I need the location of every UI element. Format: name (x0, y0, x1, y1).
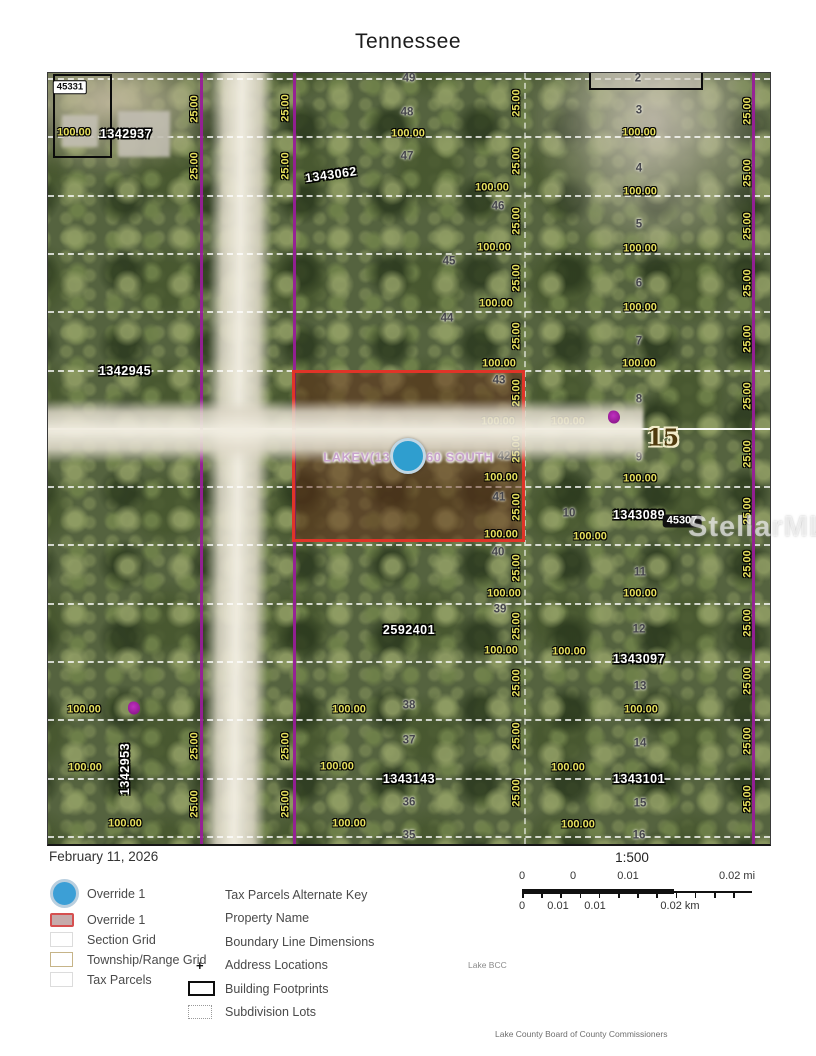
aerial-map: 4948474645444342414039383736352345678910… (47, 72, 771, 846)
map-label: 25.00 (281, 790, 292, 818)
map-label: 100.00 (551, 763, 585, 774)
legend-item: Tax Parcels Alternate Key (188, 886, 374, 903)
legend-item: Section Grid (50, 931, 207, 948)
map-label: 16 (633, 830, 646, 842)
map-label: 25.00 (512, 322, 523, 350)
map-label: 100.00 (67, 705, 101, 716)
page-title: Tennessee (0, 30, 816, 54)
map-label: 37 (403, 735, 416, 747)
legend-label: Override 1 (87, 913, 145, 927)
legend-item: Override 1 (50, 879, 207, 908)
building-footprint-lot-2 (589, 72, 703, 90)
scale-km-label: 0 (519, 900, 525, 912)
legend-swatch-rect-dotted (188, 1005, 212, 1019)
scale-mi-label: 0 (570, 870, 576, 882)
map-label: 25.00 (512, 779, 523, 807)
map-label: 25.00 (743, 609, 754, 637)
map-label: 100.00 (623, 474, 657, 485)
map-label: 25.00 (281, 94, 292, 122)
map-label: 1343097 (613, 653, 665, 666)
section-number: 15 (647, 427, 679, 450)
map-label: 100.00 (561, 820, 595, 831)
map-label: 1342945 (99, 365, 151, 378)
map-label: 100.00 (573, 532, 607, 543)
legend-label: Property Name (225, 911, 309, 925)
subdivision-lot-line (48, 719, 770, 721)
property-name-left: LAKEV(13 (323, 451, 390, 464)
legend-label: Override 1 (87, 887, 145, 901)
map-label: 25.00 (743, 325, 754, 353)
map-label: 100.00 (332, 705, 366, 716)
map-label: 100.00 (623, 187, 657, 198)
map-label: 1343089 (613, 509, 665, 522)
map-label: 43 (493, 375, 506, 387)
map-label: 2592401 (383, 624, 435, 637)
map-label: 25.00 (743, 159, 754, 187)
subdivision-lot-line (48, 544, 770, 546)
map-label: 100.00 (332, 819, 366, 830)
map-label: 47 (401, 151, 414, 163)
legend-item: Township/Range Grid (50, 951, 207, 968)
map-label: 100.00 (622, 128, 656, 139)
map-label: 25.00 (512, 264, 523, 292)
map-label: 48 (401, 107, 414, 119)
legend-swatch-rect-plain (50, 972, 73, 987)
scale-mi-label: 0.01 (617, 870, 638, 882)
purple-mark (128, 702, 140, 715)
map-label: 25.00 (512, 207, 523, 235)
map-label: 100.00 (623, 244, 657, 255)
map-label: 100.00 (623, 589, 657, 600)
map-label: 1342953 (119, 743, 132, 795)
scale-tick (714, 891, 716, 898)
map-label: 100.00 (477, 243, 511, 254)
purple-mark (608, 411, 620, 424)
map-label: 40 (492, 547, 505, 559)
legend-item: Override 1 (50, 911, 207, 928)
map-label: 100.00 (484, 530, 518, 541)
legend-label: Section Grid (87, 933, 156, 947)
scale-mi-label: 0.02 mi (719, 870, 755, 882)
map-label: 25.00 (190, 790, 201, 818)
legend-item: Tax Parcels (50, 971, 207, 988)
legend-label: Address Locations (225, 958, 328, 972)
scale-tick (656, 891, 658, 898)
subdivision-lot-line (48, 253, 770, 255)
map-label: 45 (443, 256, 456, 268)
map-label: 35 (403, 830, 416, 842)
attribution: Lake County Board of County Commissioner… (495, 1029, 667, 1039)
map-label: 25.00 (512, 147, 523, 175)
map-label: 7 (636, 336, 642, 348)
map-label: 100.00 (391, 129, 425, 140)
map-label: 100.00 (68, 763, 102, 774)
map-label: 100.00 (57, 128, 91, 139)
scale-km-label: 0.02 km (660, 900, 699, 912)
scale-km-label: 0.01 (547, 900, 568, 912)
legend-item: Boundary Line Dimensions (188, 933, 374, 950)
legend-label: Tax Parcels Alternate Key (225, 888, 367, 902)
scale-tick (560, 891, 562, 898)
legend-item: Building Footprints (188, 980, 374, 997)
map-label: 25.00 (512, 493, 523, 521)
map-label: 25.00 (743, 269, 754, 297)
map-label: 100.00 (487, 589, 521, 600)
map-label: 15 (634, 798, 647, 810)
legend-label: Tax Parcels (87, 973, 152, 987)
map-label: 25.00 (743, 785, 754, 813)
legend-label: Building Footprints (225, 982, 329, 996)
map-label: 100.00 (484, 646, 518, 657)
parcel-report-page: Tennessee 494847464544434241403938373635… (0, 0, 816, 1056)
map-label: 100.00 (623, 303, 657, 314)
map-label: 100.00 (479, 299, 513, 310)
legend-item: Subdivision Lots (188, 1004, 374, 1021)
map-label: 38 (403, 700, 416, 712)
map-label: 1343143 (383, 773, 435, 786)
map-label: 25.00 (512, 554, 523, 582)
map-label: 100.00 (622, 359, 656, 370)
map-label: 25.00 (512, 722, 523, 750)
map-label: 25.00 (512, 89, 523, 117)
scale-tick (618, 891, 620, 898)
watermark: StellarMLS (688, 511, 816, 544)
scale-km-label: 0.01 (584, 900, 605, 912)
map-label: 100.00 (624, 705, 658, 716)
map-label: 25.00 (743, 97, 754, 125)
subdivision-lot-line (48, 603, 770, 605)
map-label: 1343101 (613, 773, 665, 786)
map-label: 25.00 (743, 212, 754, 240)
legend-label: Boundary Line Dimensions (225, 935, 374, 949)
legend-swatch-rect-black (188, 981, 215, 996)
map-label: 4 (636, 163, 642, 175)
legend-item: Property Name (188, 910, 374, 927)
legend-right-column: Tax Parcels Alternate KeyProperty NameBo… (188, 886, 374, 1021)
report-date: February 11, 2026 (49, 849, 158, 864)
scale-mi-label: 0 (519, 870, 525, 882)
scale-tick (733, 891, 735, 898)
map-label: 25.00 (190, 152, 201, 180)
legend-swatch-rect-plain (50, 932, 73, 947)
map-label: 25.00 (512, 669, 523, 697)
map-label: 3 (636, 105, 642, 117)
map-label: 45331 (53, 80, 87, 94)
map-label: 46 (492, 201, 505, 213)
legend-swatch-rect-red (50, 913, 74, 927)
map-label: 25.00 (743, 667, 754, 695)
map-label: 6 (636, 278, 642, 290)
map-label: 100.00 (475, 183, 509, 194)
lake-bcc-credit: Lake BCC (468, 960, 507, 970)
map-label: 25.00 (743, 727, 754, 755)
map-label: 14 (634, 738, 647, 750)
property-name-right: 60 SOUTH (426, 451, 494, 464)
map-label: 49 (403, 73, 416, 85)
scale-bar: 1:500 000.010.02 mi00.010.010.02 km (490, 848, 790, 918)
map-label: 10 (563, 508, 576, 520)
scale-tick (580, 891, 582, 898)
map-label: 25.00 (281, 152, 292, 180)
legend-swatch-rect-tan (50, 952, 73, 967)
map-label: 36 (403, 797, 416, 809)
legend-swatch-circle-blue (50, 879, 79, 908)
scale-tick (599, 891, 601, 898)
scale-ratio: 1:500 (615, 850, 649, 865)
map-label: 100.00 (320, 762, 354, 773)
map-label: 39 (494, 604, 507, 616)
map-label: 25.00 (743, 550, 754, 578)
clearing-top-right (528, 72, 771, 263)
scale-tick (637, 891, 639, 898)
map-label: 1342937 (100, 128, 152, 141)
map-label: 25.00 (190, 95, 201, 123)
map-label: 100.00 (552, 647, 586, 658)
map-label: 100.00 (108, 819, 142, 830)
map-label: 25.00 (190, 732, 201, 760)
map-label: 11 (634, 567, 646, 579)
legend-label: Subdivision Lots (225, 1005, 316, 1019)
scale-tick (695, 891, 697, 898)
map-label: 25.00 (743, 440, 754, 468)
map-label: 25.00 (743, 382, 754, 410)
override-location-marker (390, 438, 426, 474)
legend-left-column: Override 1Override 1Section GridTownship… (50, 879, 207, 988)
map-label: 13 (634, 681, 647, 693)
scale-tick (522, 891, 524, 898)
scale-tick (541, 891, 543, 898)
legend-swatch-plus: + (196, 958, 204, 973)
map-label: 100.00 (484, 473, 518, 484)
subdivision-lot-line (48, 311, 770, 313)
map-label: 5 (636, 219, 642, 231)
map-label: 41 (493, 492, 506, 504)
map-label: 44 (441, 313, 454, 325)
map-label: 100.00 (482, 359, 516, 370)
legend-item: +Address Locations (188, 957, 374, 974)
map-label: 25.00 (281, 732, 292, 760)
map-label: 25.00 (512, 612, 523, 640)
scale-tick (676, 891, 678, 898)
map-label: 12 (633, 624, 646, 636)
map-label: 1343062 (304, 165, 357, 185)
subdivision-lot-line (48, 195, 770, 197)
map-label: 2 (635, 73, 641, 85)
